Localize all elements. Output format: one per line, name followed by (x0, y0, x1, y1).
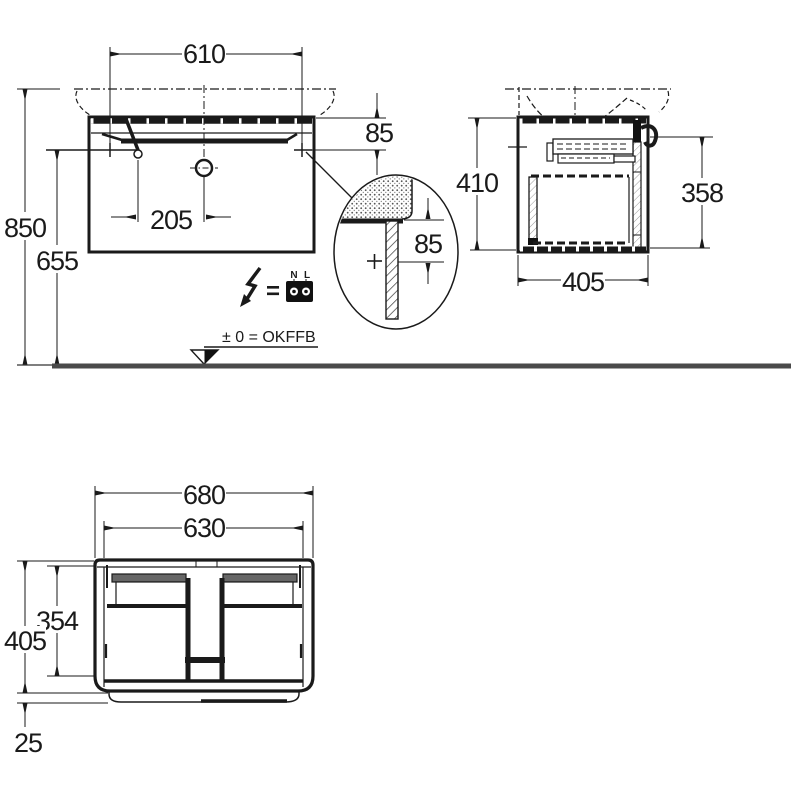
dim-630-label: 630 (183, 513, 225, 543)
technical-drawing-page: 610 85 850 655 205 = (0, 0, 800, 800)
dim-680-label: 680 (183, 480, 225, 510)
terminal-n-label: N (290, 270, 297, 281)
dim-405-side-label: 405 (562, 267, 604, 297)
dim-655-label: 655 (36, 246, 78, 276)
dim-405-side: 405 (518, 255, 648, 297)
plan-view (95, 560, 313, 702)
detail-view: 85 (306, 152, 458, 329)
dim-405-plan-label: 405 (4, 626, 46, 656)
drawer-left-plan (107, 574, 186, 606)
dim-410-label: 410 (456, 168, 498, 198)
electrical-connection: = N L (240, 268, 313, 307)
drawer-right-plan (223, 574, 302, 606)
dim-354: 354 (36, 566, 94, 676)
dim-630: 630 (104, 513, 303, 558)
washbasin-outline-front (74, 89, 336, 115)
dim-25: 25 (14, 703, 108, 758)
dim-358-label: 358 (681, 178, 723, 208)
dim-655: 655 (36, 150, 78, 365)
dim-850-label: 850 (4, 213, 46, 243)
basin-ceramic-section (334, 176, 412, 219)
dim-85-detail-label: 85 (414, 229, 442, 259)
dim-410: 410 (456, 118, 516, 250)
back-panel (633, 120, 641, 249)
side-view (505, 86, 671, 252)
internal-drawer-side (547, 139, 635, 163)
dim-85-front-label: 85 (365, 118, 393, 148)
drain-point (134, 150, 142, 158)
front-view (46, 85, 386, 252)
vanity-unit-drawing: 610 85 850 655 205 = (0, 0, 800, 800)
dim-358: 358 (650, 137, 723, 248)
dim-205-label: 205 (150, 205, 192, 235)
datum-level-icon (191, 350, 218, 364)
wall-panel-section (386, 221, 398, 319)
dim-610-label: 610 (183, 39, 225, 69)
datum-level: ± 0 = OKFFB (191, 329, 318, 364)
dim-850: 850 (4, 89, 60, 365)
dim-85-front: 85 (316, 93, 393, 175)
floor-line (17, 365, 791, 366)
datum-label: ± 0 = OKFFB (222, 329, 316, 346)
dim-25-label: 25 (14, 728, 42, 758)
power-lightning-icon (240, 268, 260, 307)
cabinet-front-body (89, 117, 314, 252)
power-terminal-box (286, 279, 313, 302)
front-panel-plan (109, 691, 299, 702)
equals-sign: = (266, 278, 280, 305)
terminal-l-label: L (304, 270, 310, 281)
